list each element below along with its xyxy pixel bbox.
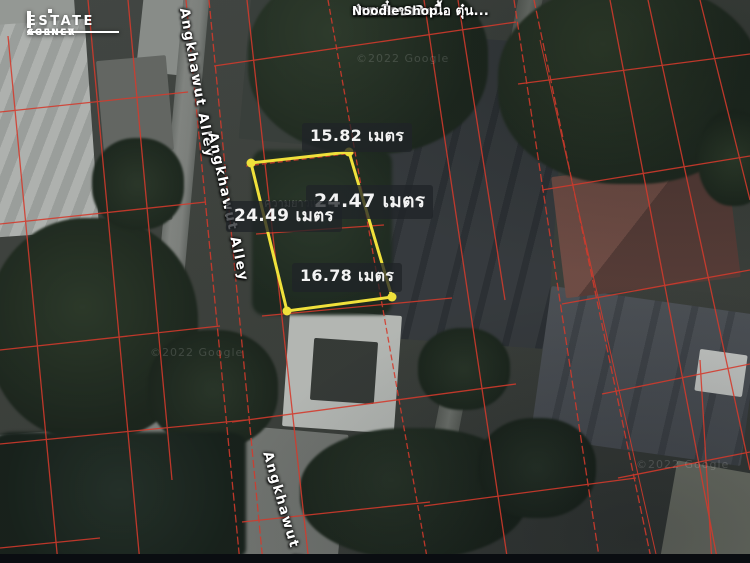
logo-brand-bottom-right: AGENCY xyxy=(27,28,75,38)
map-attribution-watermark: ©2022 Google xyxy=(636,458,729,471)
measurement-top: 15.82 เมตร xyxy=(302,123,412,152)
map-attribution-watermark: ©2022 Google xyxy=(356,52,449,65)
measurement-left: 24.49 เมตร xyxy=(226,201,342,232)
map-canvas[interactable]: ©2022 Google ©2022 Google ©2022 Google ก… xyxy=(0,0,750,563)
map-attribution-watermark: ©2022 Google xyxy=(150,346,243,359)
logo-brand-top: ESTATE xyxy=(27,15,95,28)
bottom-dark-strip xyxy=(0,554,750,563)
poi-name-line3: Noodle Shop xyxy=(352,4,438,18)
measurement-bottom: 16.78 เมตร xyxy=(292,263,402,292)
